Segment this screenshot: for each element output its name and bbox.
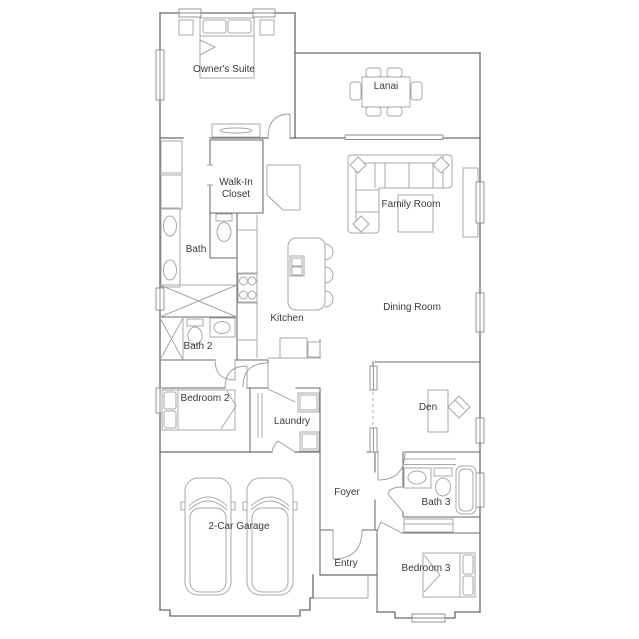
vanity-sink	[404, 468, 431, 488]
bath2-fixtures	[160, 318, 235, 360]
room-label-family-room: Family Room	[382, 199, 441, 210]
washer	[298, 393, 319, 412]
room-label-den: Den	[419, 402, 437, 413]
shower	[160, 318, 183, 360]
patio-chair	[387, 107, 402, 116]
family-room-furniture	[348, 155, 452, 233]
room-label-walk-in-closet-line1: Walk-In	[219, 177, 253, 188]
room-label-bath: Bath	[186, 244, 207, 255]
bed	[423, 553, 475, 597]
room-label-kitchen: Kitchen	[270, 313, 303, 324]
den-door	[378, 452, 405, 480]
room-label-owners-suite: Owner's Suite	[193, 64, 255, 75]
room-label-bedroom-2: Bedroom 2	[181, 393, 230, 404]
patio-chair	[366, 107, 381, 116]
entry-door	[333, 530, 362, 559]
den-right-window	[476, 418, 484, 443]
bedroom3-bottom-window	[412, 614, 445, 622]
patio-chair	[411, 82, 422, 100]
patio-chair	[366, 68, 381, 77]
room-label-bedroom-3: Bedroom 3	[402, 563, 451, 574]
room-label-entry: Entry	[334, 558, 357, 569]
shower	[160, 285, 237, 317]
owners-suite-left-window	[156, 50, 164, 100]
double-vanity	[161, 208, 180, 287]
garage-furniture	[181, 478, 297, 595]
bar-stool	[325, 291, 333, 307]
owners-bath-fixtures	[160, 141, 237, 317]
nightstand	[260, 20, 274, 35]
owners-suite-top-window	[253, 9, 275, 17]
bar-stool	[325, 267, 333, 283]
desk-chair	[448, 396, 470, 418]
owners-suite-top-window	[179, 9, 201, 17]
lanai-furniture	[350, 68, 422, 116]
room-label-lanai: Lanai	[374, 81, 398, 92]
room-label-garage: 2-Car Garage	[208, 521, 270, 532]
linen-closet	[161, 141, 182, 209]
kitchen-fixtures	[237, 165, 333, 358]
room-label-dining-room: Dining Room	[383, 302, 441, 313]
bedroom3-furniture	[404, 519, 475, 597]
laundry-door-leaves	[258, 393, 262, 438]
dryer	[300, 432, 319, 451]
toilet	[434, 468, 452, 496]
floorplan-page: Owner's Suite Lanai Walk-In Closet Famil…	[0, 0, 639, 639]
room-label-bath-2: Bath 2	[184, 341, 213, 352]
pantry	[267, 165, 300, 210]
bar-stool	[325, 244, 333, 260]
den-left-window	[370, 366, 377, 390]
patio-chair	[350, 82, 361, 100]
room-label-laundry: Laundry	[274, 416, 310, 427]
laundry-garage-door	[272, 441, 295, 452]
dining-room-right-window	[476, 293, 484, 332]
closet-shelf	[404, 519, 453, 532]
owners-suite-door	[268, 114, 290, 138]
laundry-door	[268, 389, 295, 402]
patio-chair	[387, 68, 402, 77]
den-left-window	[370, 428, 377, 452]
room-label-walk-in-closet-line2: Closet	[222, 189, 251, 200]
cooktop	[238, 274, 257, 302]
lanai-sliding-door	[345, 135, 443, 140]
bedroom2-door	[225, 366, 247, 388]
owners-suite-furniture	[179, 18, 274, 137]
car	[243, 478, 297, 595]
counter-shelf	[403, 459, 456, 465]
family-room-window-niche	[463, 168, 484, 237]
vanity-sink	[210, 318, 235, 337]
bath-left-window	[156, 288, 164, 310]
counter-cabinet	[308, 342, 320, 357]
room-label-foyer: Foyer	[334, 487, 360, 498]
toilet	[216, 214, 232, 242]
dresser	[212, 124, 260, 137]
bath3-door	[388, 487, 403, 512]
closet-door-opening	[207, 165, 213, 185]
room-label-bath-3: Bath 3	[422, 497, 451, 508]
floorplan-canvas: Owner's Suite Lanai Walk-In Closet Famil…	[0, 0, 639, 639]
island	[288, 238, 325, 310]
car	[181, 478, 235, 595]
bath3-right-window	[476, 473, 484, 507]
bathtub	[456, 466, 476, 514]
refrigerator	[280, 338, 307, 358]
bedroom3-door	[377, 522, 402, 533]
nightstand	[179, 20, 193, 35]
